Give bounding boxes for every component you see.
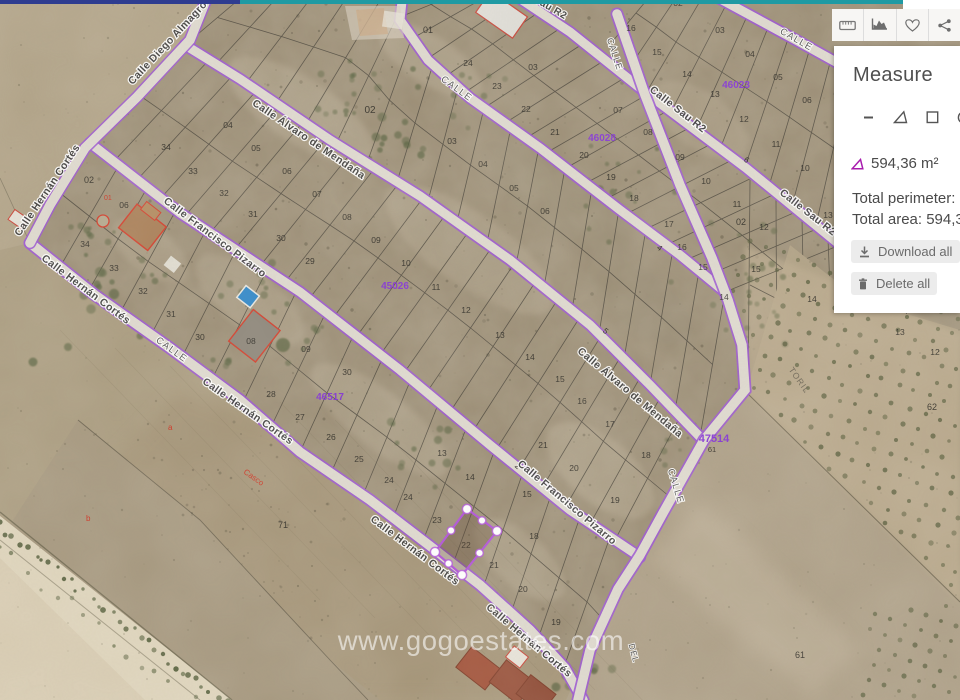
svg-text:www.gogoestates.com: www.gogoestates.com [337,625,625,656]
